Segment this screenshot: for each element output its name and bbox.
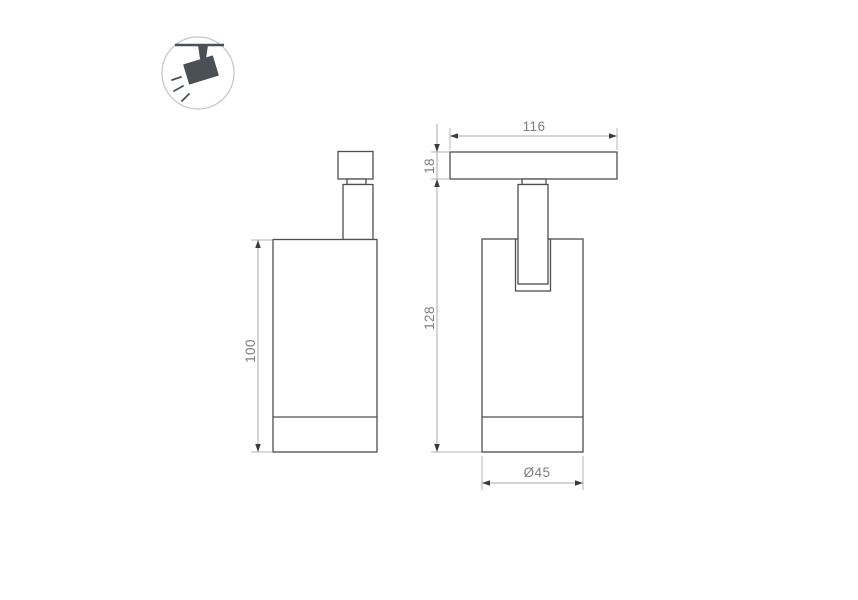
dim-label-18: 18 (422, 158, 437, 174)
front-dim-diameter: Ø45 (482, 456, 583, 490)
arrow-left (450, 133, 458, 139)
technical-drawing-canvas: 100 116 (0, 0, 858, 600)
arrow-18-bottom-128-top (434, 179, 440, 187)
side-track-connector (338, 152, 373, 180)
front-track-plate (450, 152, 617, 179)
drawing-svg: 100 116 (0, 0, 858, 600)
arrow-up (255, 240, 261, 248)
side-neck (347, 179, 366, 185)
dim-label-128: 128 (422, 306, 437, 330)
side-dim-height: 100 (243, 240, 272, 452)
arrow-down (255, 444, 261, 452)
arrow-right (575, 480, 583, 486)
side-lamp-body (273, 240, 377, 453)
product-type-icon (162, 37, 234, 109)
dim-label-100: 100 (243, 339, 258, 363)
arrow-left (482, 480, 490, 486)
side-stem (343, 185, 373, 240)
dim-label-116: 116 (523, 119, 546, 134)
front-view: 116 18 128 Ø45 (422, 119, 617, 490)
front-stem (518, 185, 548, 285)
arrow-right (609, 133, 617, 139)
front-neck (522, 179, 546, 185)
side-view: 100 (243, 152, 377, 453)
front-dim-width: 116 (450, 119, 617, 150)
arrow-128-bottom (434, 444, 440, 452)
arrow-18-top (434, 144, 440, 152)
dim-label-d45: Ø45 (524, 465, 551, 480)
